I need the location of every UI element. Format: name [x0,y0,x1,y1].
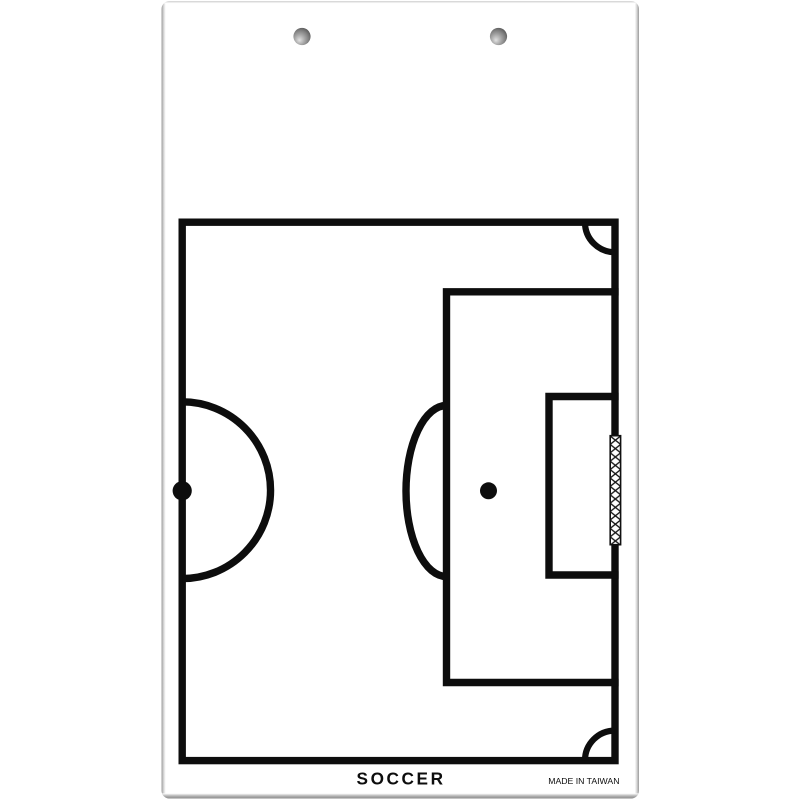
svg-text:MADE IN TAIWAN: MADE IN TAIWAN [548,776,619,786]
svg-text:SOCCER: SOCCER [357,769,446,789]
